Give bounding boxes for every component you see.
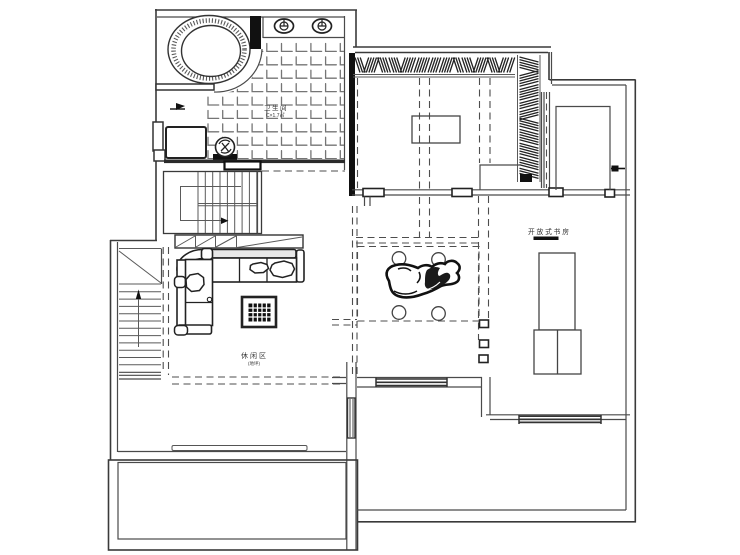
svg-text:开放式书房: 开放式书房 xyxy=(528,227,569,236)
svg-text:C×1.7㎡: C×1.7㎡ xyxy=(266,112,284,119)
svg-text:(地坪): (地坪) xyxy=(248,360,260,367)
svg-text:卫生间: 卫生间 xyxy=(264,103,288,112)
svg-text:休闲区: 休闲区 xyxy=(241,351,268,360)
